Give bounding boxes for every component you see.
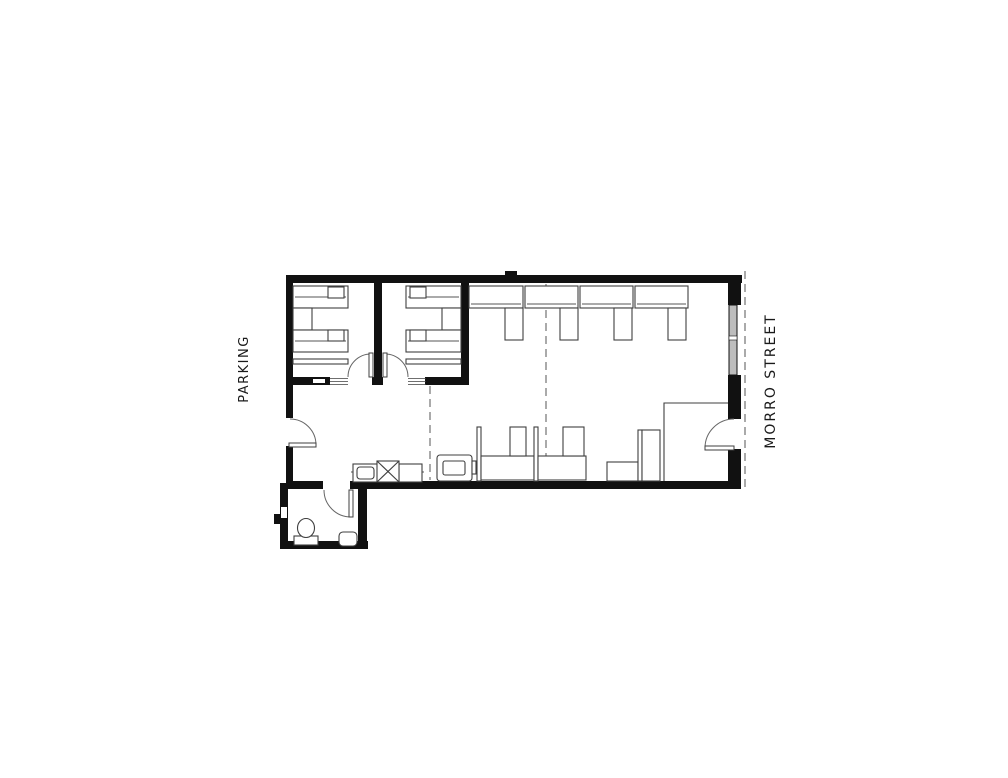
booth-table xyxy=(481,456,534,480)
bench-seat xyxy=(614,308,632,340)
appliance-handle xyxy=(472,461,476,474)
booth-bench xyxy=(642,430,660,481)
door-leaf xyxy=(349,490,353,517)
bathroom-door xyxy=(324,490,353,517)
shelf xyxy=(406,359,461,364)
booth-back xyxy=(477,427,481,481)
bathroom-wall-nub xyxy=(274,514,280,524)
wall-right-pier xyxy=(728,375,741,419)
desk-return xyxy=(442,308,461,330)
wall-top xyxy=(286,275,742,283)
offices-front-wall-right xyxy=(425,377,462,385)
floor-plan-canvas: PARKING MORRO STREET xyxy=(0,0,1008,778)
desk-return xyxy=(293,308,312,330)
wall-right-top-column xyxy=(728,275,741,305)
appliance xyxy=(437,455,476,481)
office-right-furniture xyxy=(406,286,461,364)
booth-seat xyxy=(510,427,526,456)
wall-bottom-left xyxy=(286,481,323,489)
wall-right-lower xyxy=(728,449,741,483)
bathroom-sink xyxy=(339,532,357,546)
desk-return-box xyxy=(328,287,344,298)
booth-table xyxy=(607,462,638,481)
wall-keynote-tick xyxy=(505,271,517,276)
desk-return-box xyxy=(410,330,426,341)
street-entry-door xyxy=(705,419,734,450)
table xyxy=(525,286,578,308)
window-mullion-tick xyxy=(729,336,737,340)
door-leaf xyxy=(383,353,387,377)
booth-back xyxy=(534,427,538,481)
office-right-door xyxy=(383,353,408,377)
office-left-furniture xyxy=(293,286,348,364)
office-left-door xyxy=(348,353,373,377)
appliance-door xyxy=(443,461,465,475)
bathroom-wall-vent xyxy=(281,507,287,518)
kitchen-counter xyxy=(353,461,422,482)
counter-sink xyxy=(357,467,374,479)
bench-seat xyxy=(505,308,523,340)
door-swing-arc xyxy=(324,490,351,517)
floor-plan-page: PARKING MORRO STREET xyxy=(0,0,1008,778)
table xyxy=(635,286,688,308)
door-swing-arc xyxy=(705,419,734,448)
parking-label: PARKING xyxy=(237,335,252,403)
table xyxy=(469,286,523,308)
morro-street-label: MORRO STREET xyxy=(763,313,779,448)
parking-side-exit-door xyxy=(289,419,316,447)
table xyxy=(580,286,633,308)
booth-table xyxy=(538,456,586,480)
entry-vestibule xyxy=(664,403,728,481)
booth-back xyxy=(638,430,642,481)
door-swing-arc xyxy=(385,354,408,377)
storefront-window xyxy=(729,305,737,375)
door-leaf xyxy=(369,353,373,377)
toilet-bowl xyxy=(298,519,315,538)
door-swing-arc xyxy=(290,419,316,445)
wall-sign-dash xyxy=(313,379,325,383)
office-divider-wall xyxy=(374,283,382,377)
booth-seat xyxy=(563,427,584,456)
offices-front-wall-stub xyxy=(372,377,383,385)
bench-seat xyxy=(668,308,686,340)
shelf xyxy=(293,359,348,364)
vestibule-partition xyxy=(664,403,728,481)
wall-left-lower xyxy=(286,446,293,483)
door-swing-arc xyxy=(348,354,371,377)
door-leaf xyxy=(705,446,734,450)
bench-seat xyxy=(560,308,578,340)
desk-return-box xyxy=(410,287,426,298)
office-right-wall xyxy=(461,283,469,385)
bathroom-wall-right xyxy=(358,483,367,549)
wall-tables-row xyxy=(469,286,688,340)
desk-return-box xyxy=(328,330,344,341)
door-leaf xyxy=(289,443,316,447)
wall-left-upper xyxy=(286,275,293,418)
booth-seating xyxy=(477,427,660,481)
